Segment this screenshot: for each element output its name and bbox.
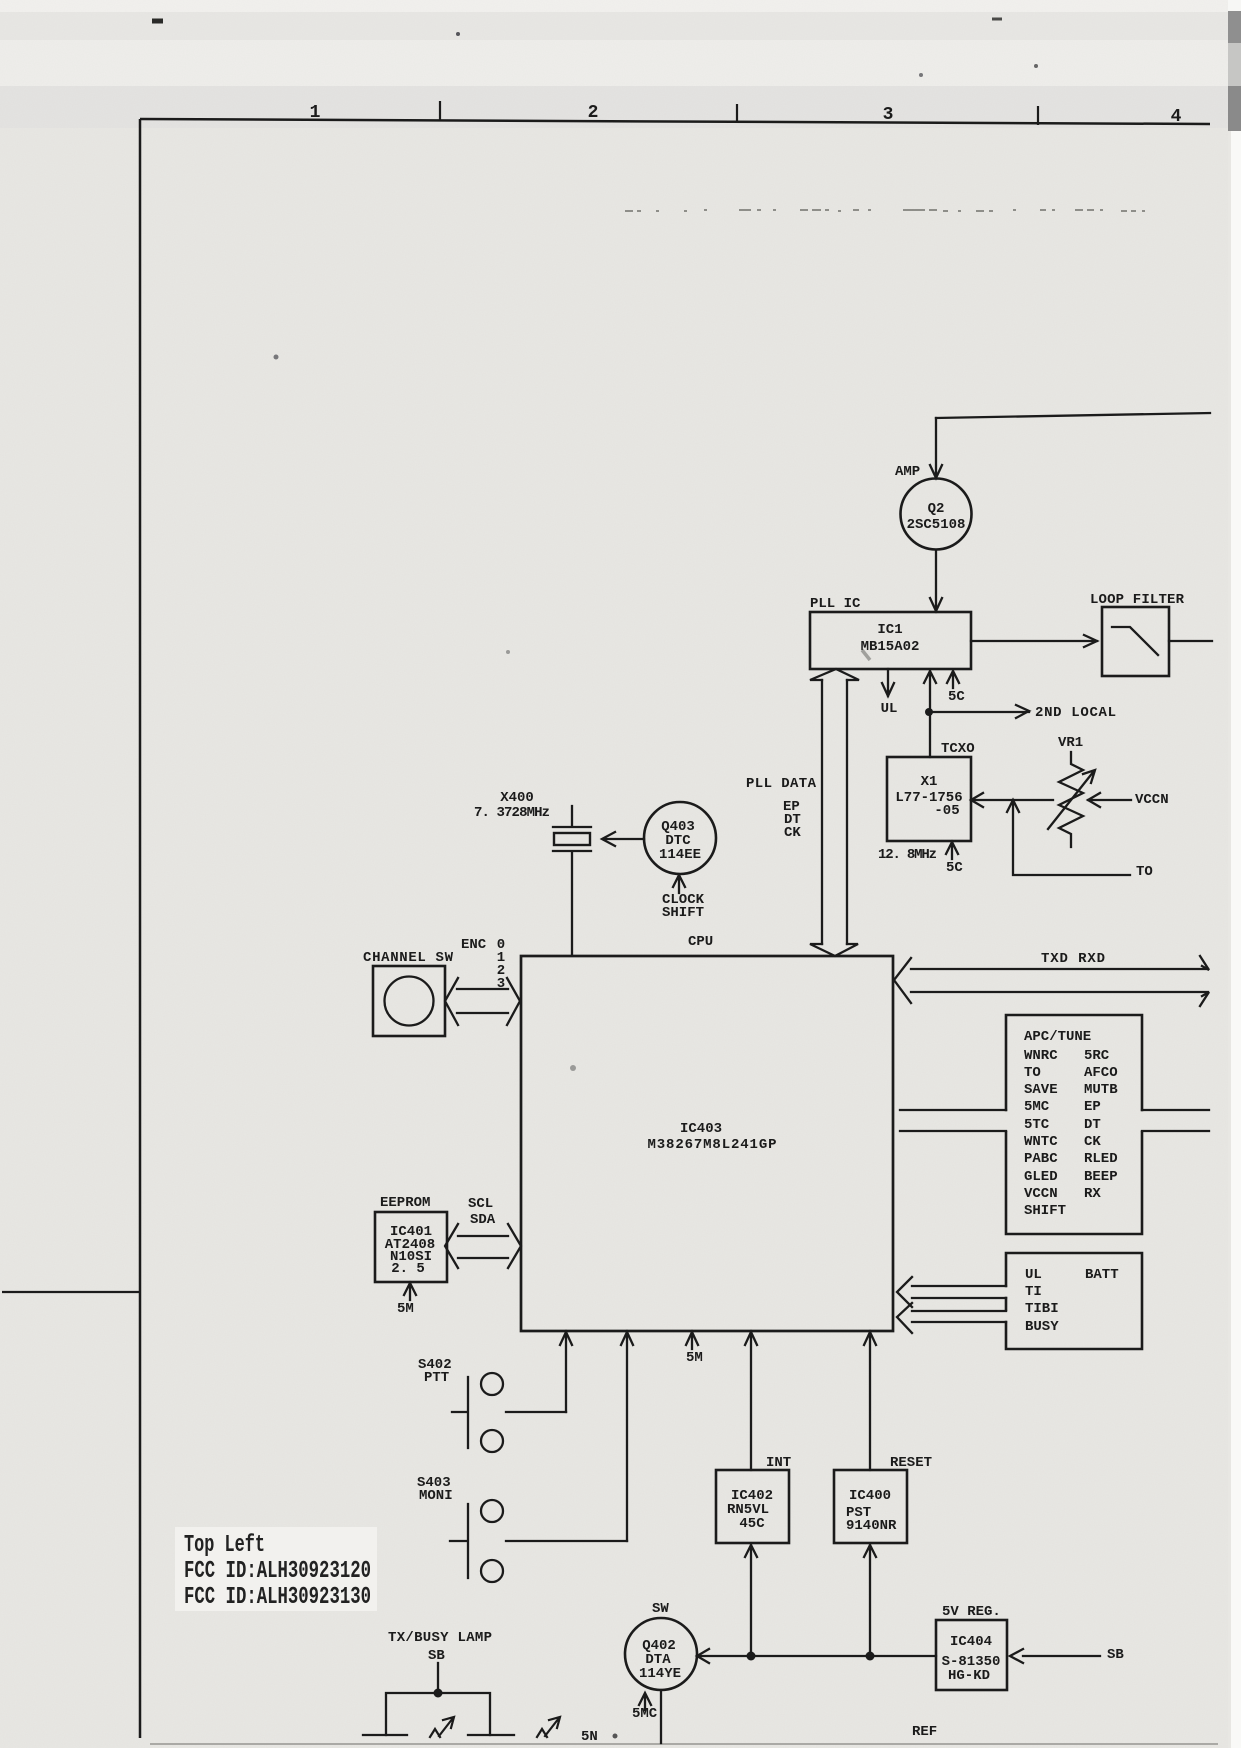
svg-text:SW: SW <box>652 1601 669 1617</box>
svg-text:SCL: SCL <box>468 1196 493 1212</box>
svg-text:GLED: GLED <box>1024 1169 1058 1185</box>
svg-text:Top Left: Top Left <box>184 1532 265 1559</box>
svg-text:MONI: MONI <box>419 1488 453 1504</box>
svg-text:IC404: IC404 <box>950 1634 992 1650</box>
svg-text:5C: 5C <box>948 689 965 705</box>
svg-text:HG-KD: HG-KD <box>948 1668 990 1684</box>
svg-text:IC403: IC403 <box>680 1121 722 1137</box>
svg-text:2. 5: 2. 5 <box>391 1261 425 1277</box>
svg-text:RESET: RESET <box>890 1455 932 1471</box>
svg-text:UL: UL <box>1025 1267 1042 1283</box>
svg-text:3: 3 <box>497 976 505 992</box>
svg-text:TI: TI <box>1025 1284 1042 1300</box>
svg-text:M38267M8L241GP: M38267M8L241GP <box>648 1137 777 1153</box>
svg-text:FCC ID:ALH30923130: FCC ID:ALH30923130 <box>184 1584 371 1611</box>
svg-text:5MC: 5MC <box>1024 1099 1050 1115</box>
svg-text:EP: EP <box>1084 1099 1101 1115</box>
svg-text:7. 3728MHz: 7. 3728MHz <box>474 805 550 821</box>
svg-text:RLED: RLED <box>1084 1151 1118 1167</box>
svg-text:VCCN: VCCN <box>1135 792 1169 808</box>
svg-text:SB: SB <box>428 1648 445 1664</box>
svg-text:SDA: SDA <box>470 1212 496 1228</box>
svg-text:5N: 5N <box>581 1729 598 1745</box>
svg-text:PLL DATA: PLL DATA <box>746 776 817 792</box>
svg-text:CK: CK <box>1084 1134 1101 1150</box>
svg-text:PTT: PTT <box>424 1370 449 1386</box>
svg-text:X400: X400 <box>500 790 534 806</box>
svg-text:2ND LOCAL: 2ND LOCAL <box>1035 705 1116 721</box>
svg-text:MUTB: MUTB <box>1084 1082 1118 1098</box>
svg-text:SHIFT: SHIFT <box>1024 1203 1066 1219</box>
svg-text:4: 4 <box>1171 107 1182 127</box>
svg-text:2SC5108: 2SC5108 <box>907 517 966 533</box>
svg-text:ENC: ENC <box>461 937 487 953</box>
svg-text:SAVE: SAVE <box>1024 1082 1058 1098</box>
svg-text:IC400: IC400 <box>849 1488 891 1504</box>
svg-text:X1: X1 <box>921 774 938 790</box>
svg-text:WNRC: WNRC <box>1024 1048 1058 1064</box>
svg-text:INT: INT <box>766 1455 791 1471</box>
svg-text:APC/TUNE: APC/TUNE <box>1024 1029 1091 1045</box>
svg-text:IC1: IC1 <box>877 622 902 638</box>
svg-text:DT: DT <box>1084 1117 1101 1133</box>
svg-text:TIBI: TIBI <box>1025 1301 1059 1317</box>
svg-text:TO: TO <box>1136 864 1153 880</box>
svg-text:AFCO: AFCO <box>1084 1065 1118 1081</box>
svg-text:UL: UL <box>881 701 898 717</box>
svg-text:CK: CK <box>784 825 801 841</box>
svg-text:TX/BUSY LAMP: TX/BUSY LAMP <box>388 1630 492 1646</box>
svg-text:REF: REF <box>912 1724 937 1740</box>
svg-text:PLL IC: PLL IC <box>810 596 861 612</box>
svg-text:EEPROM: EEPROM <box>380 1195 430 1211</box>
svg-text:LOOP FILTER: LOOP FILTER <box>1090 592 1185 608</box>
svg-text:5C: 5C <box>946 860 963 876</box>
svg-text:BATT: BATT <box>1085 1267 1119 1283</box>
svg-text:-05: -05 <box>934 803 959 819</box>
svg-text:VCCN: VCCN <box>1024 1186 1058 1202</box>
svg-text:BUSY: BUSY <box>1025 1319 1059 1335</box>
svg-text:MB15A02: MB15A02 <box>861 639 920 655</box>
svg-text:TO: TO <box>1024 1065 1041 1081</box>
svg-text:5V REG.: 5V REG. <box>942 1604 1001 1620</box>
svg-text:5TC: 5TC <box>1024 1117 1050 1133</box>
svg-text:5M: 5M <box>686 1350 703 1366</box>
svg-text:Q2: Q2 <box>928 501 945 517</box>
svg-text:WNTC: WNTC <box>1024 1134 1058 1150</box>
svg-text:SB: SB <box>1107 1647 1124 1663</box>
svg-text:CHANNEL SW: CHANNEL SW <box>363 950 454 966</box>
svg-text:3: 3 <box>883 105 894 125</box>
svg-text:PABC: PABC <box>1024 1151 1058 1167</box>
svg-text:5MC: 5MC <box>632 1706 658 1722</box>
svg-text:TXD RXD: TXD RXD <box>1041 951 1105 967</box>
svg-text:114EE: 114EE <box>659 847 701 863</box>
svg-text:TCXO: TCXO <box>941 741 975 757</box>
svg-text:AMP: AMP <box>895 464 920 480</box>
svg-text:SHIFT: SHIFT <box>662 905 704 921</box>
svg-text:9140NR: 9140NR <box>846 1518 897 1534</box>
svg-text:1: 1 <box>310 103 321 123</box>
svg-text:CPU: CPU <box>688 934 713 950</box>
svg-text:VR1: VR1 <box>1058 735 1083 751</box>
svg-text:BEEP: BEEP <box>1084 1169 1118 1185</box>
svg-text:RX: RX <box>1084 1186 1101 1202</box>
svg-text:5RC: 5RC <box>1084 1048 1110 1064</box>
svg-text:114YE: 114YE <box>639 1666 681 1682</box>
svg-text:5M: 5M <box>397 1301 414 1317</box>
svg-text:45C: 45C <box>739 1516 765 1532</box>
svg-text:FCC ID:ALH30923120: FCC ID:ALH30923120 <box>184 1558 371 1585</box>
svg-text:2: 2 <box>588 103 599 123</box>
svg-text:12. 8MHz: 12. 8MHz <box>878 847 937 863</box>
